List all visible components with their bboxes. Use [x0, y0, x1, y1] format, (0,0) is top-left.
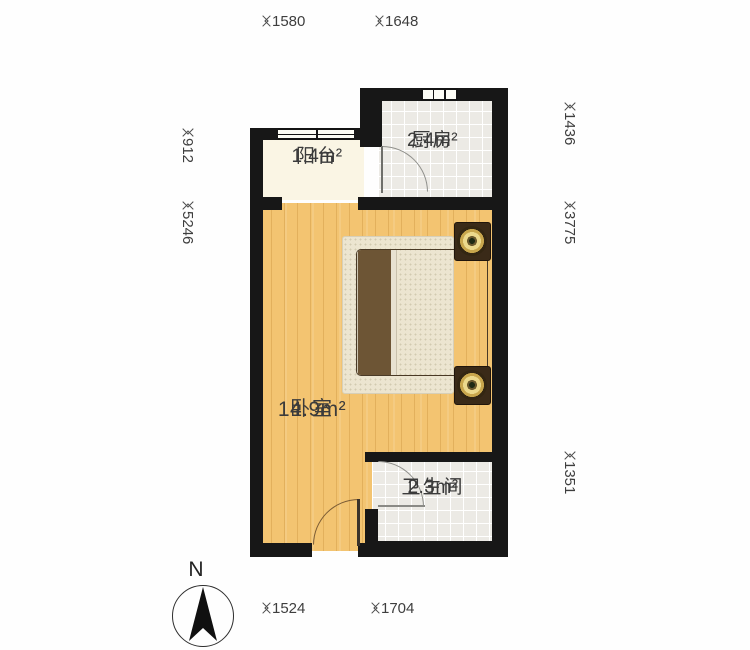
dim-value: 3775	[562, 205, 579, 250]
bed-blanket	[357, 250, 391, 375]
bathroom-door-leaf	[378, 505, 425, 507]
wall-bathroom-top	[365, 452, 508, 462]
wall-left	[250, 128, 263, 557]
wall-balcony-bottom-stub	[250, 197, 282, 210]
dim-value: 1524	[266, 600, 311, 617]
bedroom-area: 14.9m²	[278, 398, 346, 423]
wall-balcony-kitchen-divider	[360, 95, 382, 147]
bathroom-area: 2.3m²	[407, 477, 458, 499]
entry-door-leaf	[357, 499, 360, 546]
kitchen-window-icon	[421, 88, 458, 101]
dim-value: 5246	[180, 205, 197, 250]
lamp-icon	[456, 369, 488, 401]
dim-value: 1648	[379, 13, 424, 30]
bed-pillow-area	[357, 250, 358, 375]
wall-bottom-left	[250, 543, 312, 557]
dim-value: 1704	[375, 600, 420, 617]
balcony-area: 1.4m²	[291, 146, 342, 168]
bed	[356, 249, 488, 376]
kitchen-area: 2.4m²	[407, 130, 458, 152]
north-arrow-icon	[183, 585, 223, 645]
lamp-icon	[456, 225, 488, 257]
compass-north-label: N	[168, 558, 224, 582]
wall-bathroom-bottom	[365, 541, 508, 557]
dim-value: 1351	[562, 455, 579, 500]
dim-value: 912	[180, 132, 197, 169]
dim-value: 1580	[266, 13, 311, 30]
dim-value: 1436	[562, 106, 579, 151]
balcony-window-icon	[278, 128, 354, 140]
wall-right	[492, 88, 508, 557]
wall-bedroom-top	[358, 197, 508, 210]
kitchen-door-leaf	[381, 146, 383, 193]
floor-plan-canvas: 阳台 1.4m² 厨房 2.4m² 卧室 14.9m² 卫生间 2.3m² 15…	[0, 0, 750, 650]
